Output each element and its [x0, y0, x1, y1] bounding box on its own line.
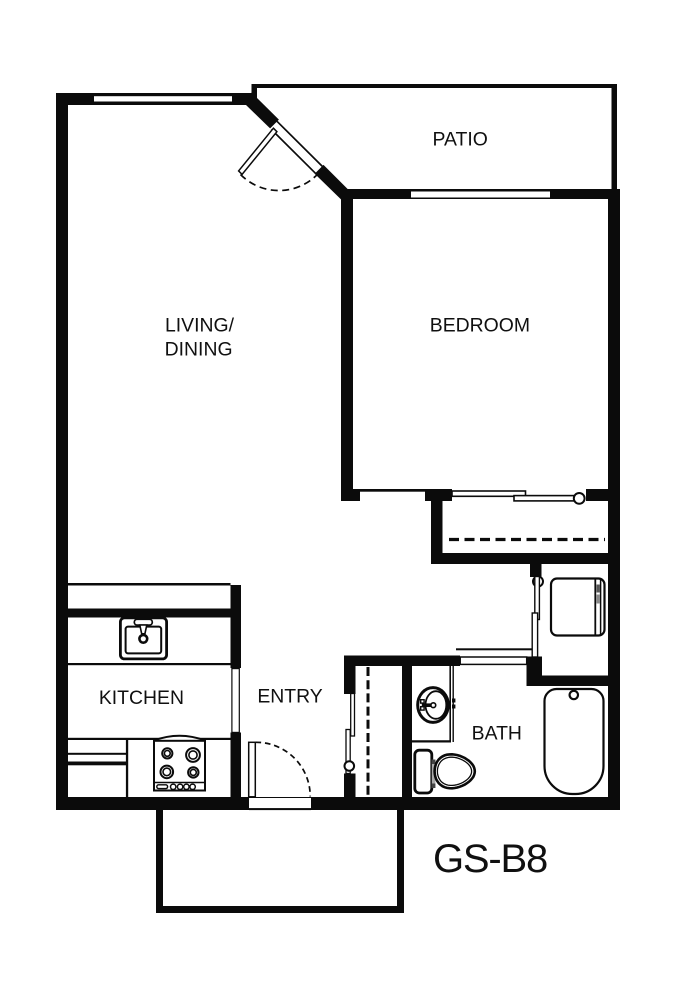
svg-text:BATH: BATH — [472, 723, 522, 745]
svg-text:LIVING/: LIVING/ — [165, 315, 235, 337]
svg-text:GS-B8: GS-B8 — [433, 837, 547, 881]
svg-text:PATIO: PATIO — [433, 129, 488, 151]
svg-text:DINING: DINING — [165, 339, 233, 361]
svg-text:BEDROOM: BEDROOM — [430, 315, 530, 337]
svg-text:ENTRY: ENTRY — [257, 686, 322, 708]
svg-text:KITCHEN: KITCHEN — [99, 687, 184, 709]
